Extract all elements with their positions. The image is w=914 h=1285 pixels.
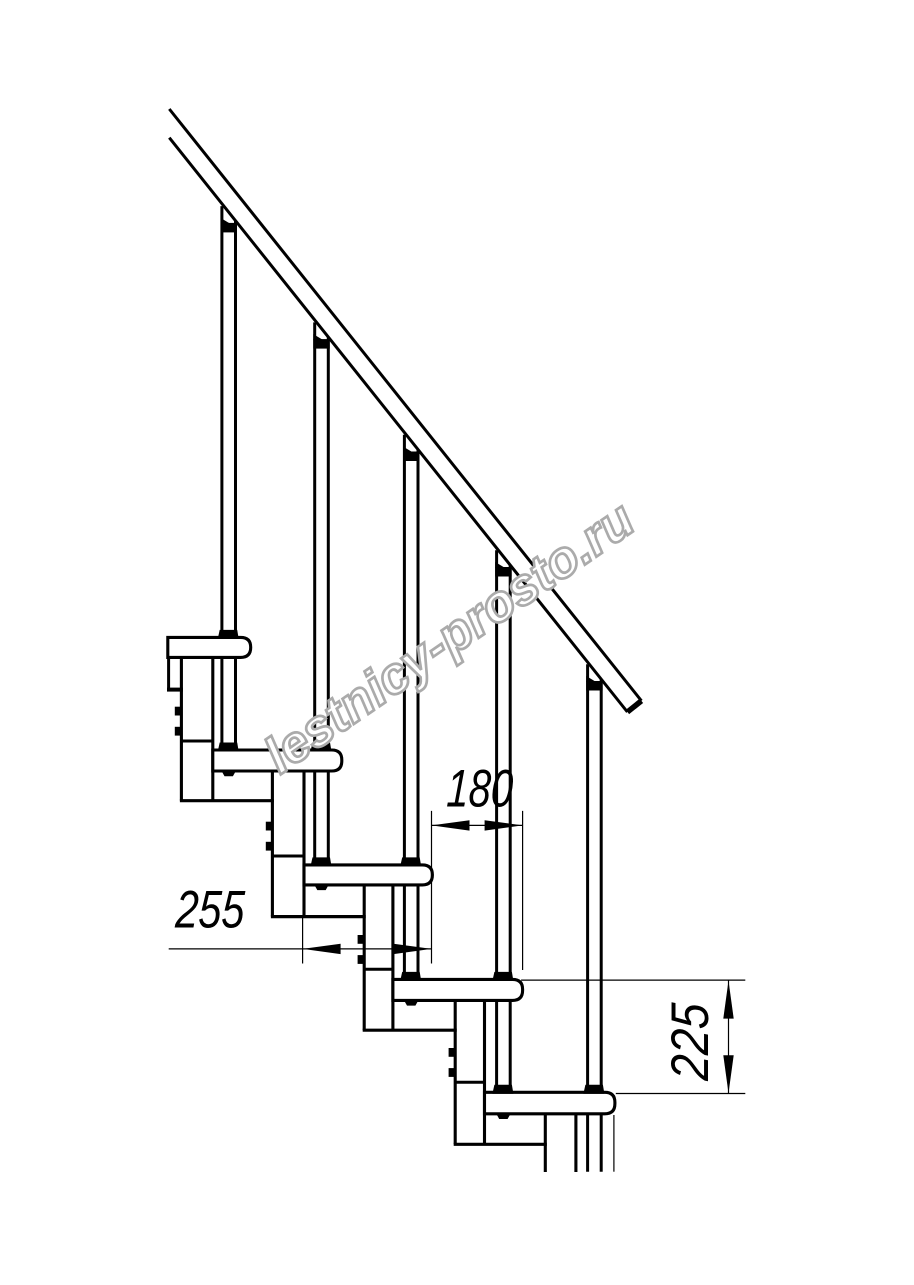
svg-text:180: 180 [446,759,515,818]
svg-text:255: 255 [174,881,247,940]
svg-text:225: 225 [660,1002,720,1083]
